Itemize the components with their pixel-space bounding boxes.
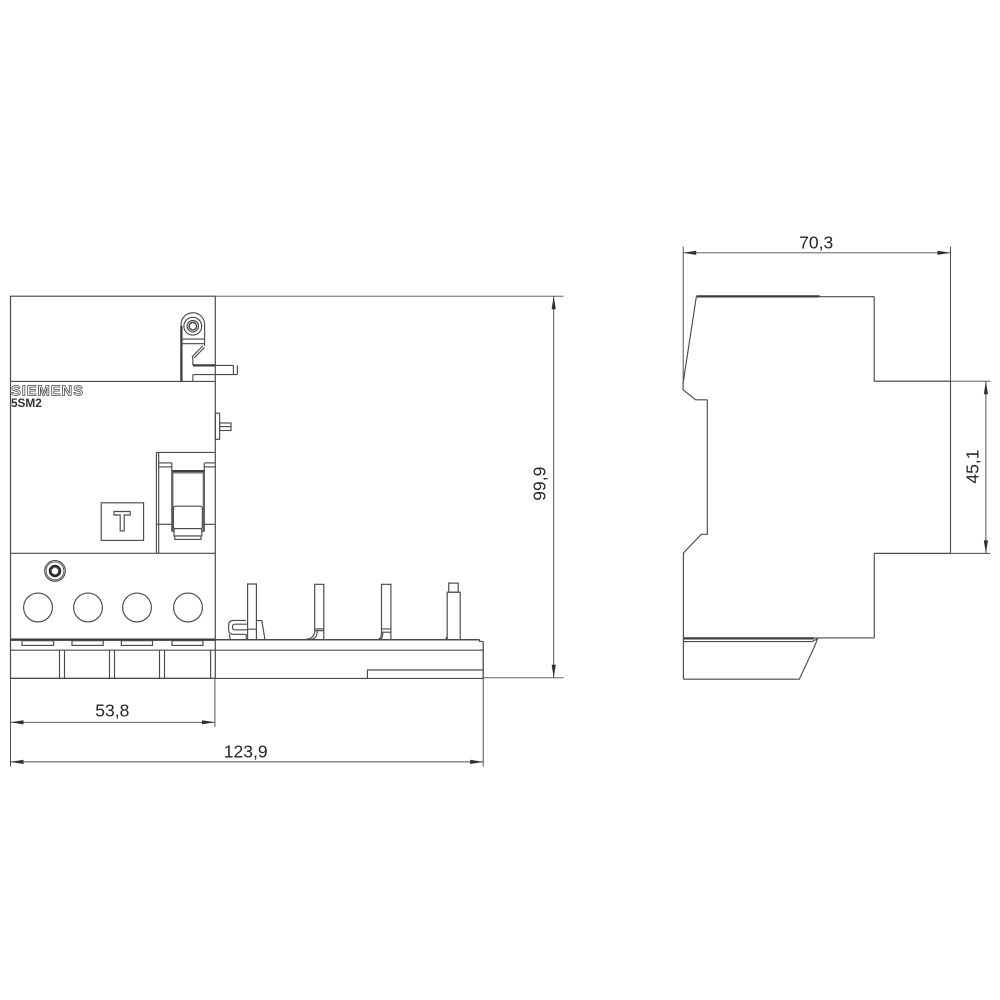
svg-text:45,1: 45,1: [962, 450, 982, 484]
svg-text:99,9: 99,9: [530, 467, 550, 501]
svg-text:70,3: 70,3: [799, 233, 833, 253]
svg-text:5SM2: 5SM2: [11, 396, 42, 410]
svg-text:123,9: 123,9: [224, 742, 268, 762]
svg-text:53,8: 53,8: [95, 700, 129, 720]
